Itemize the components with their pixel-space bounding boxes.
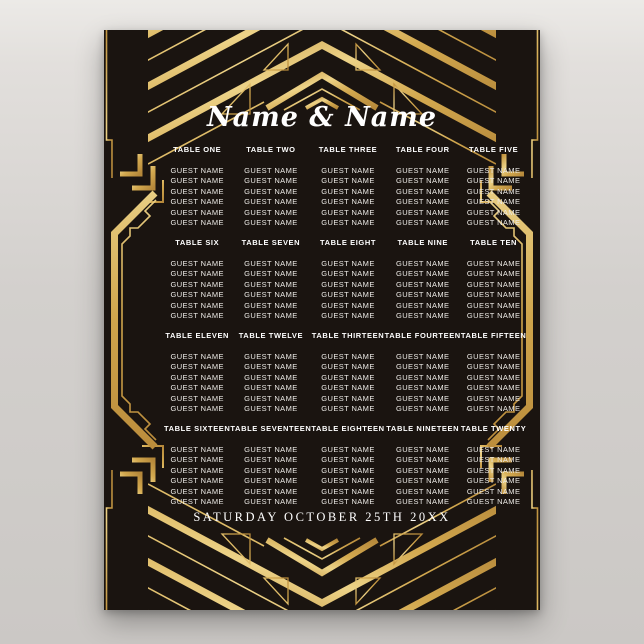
- guest-name: GUEST NAME: [311, 404, 384, 414]
- guest-name: GUEST NAME: [385, 497, 461, 507]
- table-group: TABLE THIRTEENGUEST NAMEGUEST NAMEGUEST …: [311, 330, 384, 423]
- wall-background: Name & Name TABLE ONEGUEST NAMEGUEST NAM…: [0, 0, 644, 644]
- guest-name: GUEST NAME: [461, 197, 527, 207]
- table-group: TABLE NINETEENGUEST NAMEGUEST NAMEGUEST …: [385, 423, 461, 516]
- guest-name: GUEST NAME: [385, 166, 461, 176]
- table-label: TABLE SEVEN: [230, 237, 311, 249]
- guest-name: GUEST NAME: [385, 404, 461, 414]
- table-group: TABLE EIGHTEENGUEST NAMEGUEST NAMEGUEST …: [311, 423, 384, 516]
- guest-name: GUEST NAME: [311, 445, 384, 455]
- guest-name: GUEST NAME: [164, 197, 230, 207]
- guest-name: GUEST NAME: [164, 362, 230, 372]
- guest-name: GUEST NAME: [311, 259, 384, 269]
- guest-name: GUEST NAME: [164, 311, 230, 321]
- guest-name: GUEST NAME: [385, 208, 461, 218]
- guest-name: GUEST NAME: [230, 218, 311, 228]
- couple-names-title: Name & Name: [104, 102, 540, 134]
- guest-name: GUEST NAME: [311, 373, 384, 383]
- guest-name: GUEST NAME: [385, 352, 461, 362]
- guest-name: GUEST NAME: [461, 280, 527, 290]
- guest-name: GUEST NAME: [461, 373, 527, 383]
- guest-name: GUEST NAME: [461, 290, 527, 300]
- table-group: TABLE SIXGUEST NAMEGUEST NAMEGUEST NAMEG…: [164, 237, 230, 330]
- table-label: TABLE THREE: [311, 144, 384, 156]
- guest-name: GUEST NAME: [230, 208, 311, 218]
- guest-name: GUEST NAME: [230, 404, 311, 414]
- guest-name: GUEST NAME: [461, 383, 527, 393]
- guest-name: GUEST NAME: [461, 404, 527, 414]
- guest-name: GUEST NAME: [461, 487, 527, 497]
- table-group: TABLE SIXTEENGUEST NAMEGUEST NAMEGUEST N…: [164, 423, 230, 516]
- guest-name: GUEST NAME: [164, 280, 230, 290]
- guest-name: GUEST NAME: [385, 445, 461, 455]
- guest-name: GUEST NAME: [164, 445, 230, 455]
- guest-name: GUEST NAME: [311, 455, 384, 465]
- table-group: TABLE FIVEGUEST NAMEGUEST NAMEGUEST NAME…: [461, 144, 527, 237]
- table-label: TABLE FOURTEEN: [385, 330, 461, 342]
- guest-name: GUEST NAME: [461, 218, 527, 228]
- guest-name: GUEST NAME: [461, 301, 527, 311]
- table-group: TABLE TWENTYGUEST NAMEGUEST NAMEGUEST NA…: [461, 423, 527, 516]
- table-label: TABLE FIFTEEN: [461, 330, 527, 342]
- table-group: TABLE TENGUEST NAMEGUEST NAMEGUEST NAMEG…: [461, 237, 527, 330]
- guest-name: GUEST NAME: [164, 259, 230, 269]
- table-label: TABLE TWO: [230, 144, 311, 156]
- guest-name: GUEST NAME: [385, 394, 461, 404]
- guest-name: GUEST NAME: [230, 187, 311, 197]
- table-label: TABLE ONE: [164, 144, 230, 156]
- guest-name: GUEST NAME: [385, 466, 461, 476]
- table-group: TABLE EIGHTGUEST NAMEGUEST NAMEGUEST NAM…: [311, 237, 384, 330]
- guest-name: GUEST NAME: [385, 383, 461, 393]
- guest-name: GUEST NAME: [311, 187, 384, 197]
- guest-name: GUEST NAME: [230, 352, 311, 362]
- guest-name: GUEST NAME: [311, 208, 384, 218]
- guest-name: GUEST NAME: [311, 466, 384, 476]
- guest-name: GUEST NAME: [461, 466, 527, 476]
- guest-name: GUEST NAME: [461, 352, 527, 362]
- table-label: TABLE TEN: [461, 237, 527, 249]
- guest-name: GUEST NAME: [230, 476, 311, 486]
- guest-name: GUEST NAME: [311, 394, 384, 404]
- guest-name: GUEST NAME: [385, 197, 461, 207]
- guest-name: GUEST NAME: [230, 269, 311, 279]
- guest-name: GUEST NAME: [164, 487, 230, 497]
- guest-name: GUEST NAME: [461, 476, 527, 486]
- table-group: TABLE ONEGUEST NAMEGUEST NAMEGUEST NAMEG…: [164, 144, 230, 237]
- guest-name: GUEST NAME: [230, 176, 311, 186]
- guest-name: GUEST NAME: [230, 445, 311, 455]
- guest-name: GUEST NAME: [311, 362, 384, 372]
- guest-name: GUEST NAME: [164, 208, 230, 218]
- table-label: TABLE NINE: [385, 237, 461, 249]
- guest-name: GUEST NAME: [385, 311, 461, 321]
- table-group: TABLE ELEVENGUEST NAMEGUEST NAMEGUEST NA…: [164, 330, 230, 423]
- table-label: TABLE TWENTY: [461, 423, 527, 435]
- guest-name: GUEST NAME: [311, 269, 384, 279]
- guest-name: GUEST NAME: [311, 383, 384, 393]
- table-group: TABLE TWOGUEST NAMEGUEST NAMEGUEST NAMEG…: [230, 144, 311, 237]
- guest-name: GUEST NAME: [230, 280, 311, 290]
- guest-name: GUEST NAME: [311, 476, 384, 486]
- guest-name: GUEST NAME: [311, 497, 384, 507]
- guest-name: GUEST NAME: [164, 176, 230, 186]
- table-group: TABLE FIFTEENGUEST NAMEGUEST NAMEGUEST N…: [461, 330, 527, 423]
- guest-name: GUEST NAME: [385, 176, 461, 186]
- guest-name: GUEST NAME: [461, 455, 527, 465]
- table-group: TABLE SEVENGUEST NAMEGUEST NAMEGUEST NAM…: [230, 237, 311, 330]
- guest-name: GUEST NAME: [230, 455, 311, 465]
- guest-name: GUEST NAME: [164, 187, 230, 197]
- guest-name: GUEST NAME: [230, 197, 311, 207]
- guest-name: GUEST NAME: [311, 301, 384, 311]
- guest-name: GUEST NAME: [461, 259, 527, 269]
- guest-name: GUEST NAME: [311, 197, 384, 207]
- seating-chart-poster: Name & Name TABLE ONEGUEST NAMEGUEST NAM…: [104, 30, 540, 610]
- table-label: TABLE SEVENTEEN: [230, 423, 311, 435]
- guest-name: GUEST NAME: [164, 218, 230, 228]
- guest-name: GUEST NAME: [230, 290, 311, 300]
- guest-name: GUEST NAME: [385, 269, 461, 279]
- table-label: TABLE TWELVE: [230, 330, 311, 342]
- guest-name: GUEST NAME: [461, 208, 527, 218]
- table-group: TABLE TWELVEGUEST NAMEGUEST NAMEGUEST NA…: [230, 330, 311, 423]
- guest-name: GUEST NAME: [461, 362, 527, 372]
- table-label: TABLE SIX: [164, 237, 230, 249]
- event-date: SATURDAY OCTOBER 25TH 20XX: [104, 510, 540, 525]
- table-group: TABLE NINEGUEST NAMEGUEST NAMEGUEST NAME…: [385, 237, 461, 330]
- guest-name: GUEST NAME: [311, 280, 384, 290]
- guest-name: GUEST NAME: [164, 497, 230, 507]
- table-label: TABLE FOUR: [385, 144, 461, 156]
- guest-name: GUEST NAME: [461, 187, 527, 197]
- table-group: TABLE THREEGUEST NAMEGUEST NAMEGUEST NAM…: [311, 144, 384, 237]
- guest-name: GUEST NAME: [311, 290, 384, 300]
- guest-name: GUEST NAME: [164, 476, 230, 486]
- guest-name: GUEST NAME: [461, 311, 527, 321]
- guest-name: GUEST NAME: [164, 394, 230, 404]
- tables-grid: TABLE ONEGUEST NAMEGUEST NAMEGUEST NAMEG…: [164, 144, 484, 516]
- guest-name: GUEST NAME: [311, 166, 384, 176]
- guest-name: GUEST NAME: [385, 373, 461, 383]
- table-group: TABLE FOURTEENGUEST NAMEGUEST NAMEGUEST …: [385, 330, 461, 423]
- guest-name: GUEST NAME: [385, 218, 461, 228]
- table-group: TABLE SEVENTEENGUEST NAMEGUEST NAMEGUEST…: [230, 423, 311, 516]
- table-label: TABLE EIGHT: [311, 237, 384, 249]
- guest-name: GUEST NAME: [164, 301, 230, 311]
- guest-name: GUEST NAME: [385, 290, 461, 300]
- guest-name: GUEST NAME: [461, 166, 527, 176]
- guest-name: GUEST NAME: [385, 476, 461, 486]
- guest-name: GUEST NAME: [461, 445, 527, 455]
- guest-name: GUEST NAME: [230, 497, 311, 507]
- guest-name: GUEST NAME: [461, 497, 527, 507]
- guest-name: GUEST NAME: [311, 176, 384, 186]
- guest-name: GUEST NAME: [385, 301, 461, 311]
- guest-name: GUEST NAME: [230, 466, 311, 476]
- guest-name: GUEST NAME: [311, 352, 384, 362]
- guest-name: GUEST NAME: [230, 394, 311, 404]
- table-label: TABLE THIRTEEN: [311, 330, 384, 342]
- guest-name: GUEST NAME: [461, 394, 527, 404]
- guest-name: GUEST NAME: [230, 362, 311, 372]
- guest-name: GUEST NAME: [164, 373, 230, 383]
- guest-name: GUEST NAME: [164, 290, 230, 300]
- guest-name: GUEST NAME: [164, 383, 230, 393]
- guest-name: GUEST NAME: [164, 352, 230, 362]
- guest-name: GUEST NAME: [385, 259, 461, 269]
- guest-name: GUEST NAME: [164, 166, 230, 176]
- guest-name: GUEST NAME: [311, 311, 384, 321]
- guest-name: GUEST NAME: [230, 301, 311, 311]
- table-label: TABLE ELEVEN: [164, 330, 230, 342]
- guest-name: GUEST NAME: [164, 466, 230, 476]
- guest-name: GUEST NAME: [311, 487, 384, 497]
- guest-name: GUEST NAME: [230, 311, 311, 321]
- guest-name: GUEST NAME: [461, 269, 527, 279]
- guest-name: GUEST NAME: [461, 176, 527, 186]
- guest-name: GUEST NAME: [385, 455, 461, 465]
- guest-name: GUEST NAME: [385, 187, 461, 197]
- guest-name: GUEST NAME: [385, 280, 461, 290]
- guest-name: GUEST NAME: [230, 166, 311, 176]
- guest-name: GUEST NAME: [230, 373, 311, 383]
- guest-name: GUEST NAME: [230, 383, 311, 393]
- guest-name: GUEST NAME: [230, 487, 311, 497]
- table-label: TABLE EIGHTEEN: [311, 423, 384, 435]
- guest-name: GUEST NAME: [164, 404, 230, 414]
- guest-name: GUEST NAME: [385, 362, 461, 372]
- table-label: TABLE NINETEEN: [385, 423, 461, 435]
- guest-name: GUEST NAME: [230, 259, 311, 269]
- table-label: TABLE SIXTEEN: [164, 423, 230, 435]
- table-group: TABLE FOURGUEST NAMEGUEST NAMEGUEST NAME…: [385, 144, 461, 237]
- table-label: TABLE FIVE: [461, 144, 527, 156]
- guest-name: GUEST NAME: [164, 455, 230, 465]
- guest-name: GUEST NAME: [385, 487, 461, 497]
- guest-name: GUEST NAME: [164, 269, 230, 279]
- guest-name: GUEST NAME: [311, 218, 384, 228]
